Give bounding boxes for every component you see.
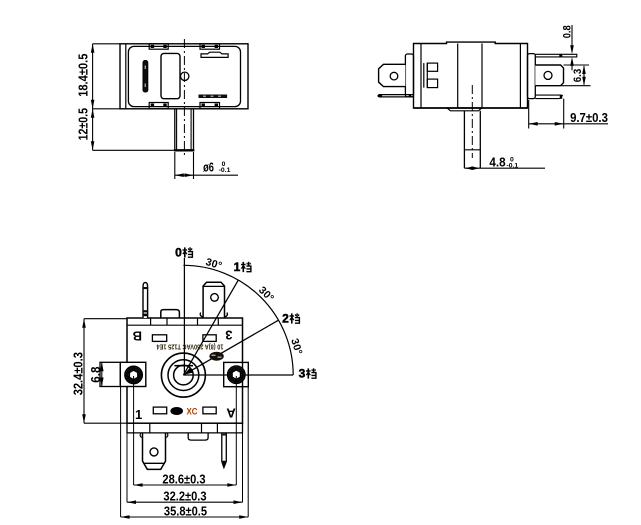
svg-text:2: 2 xyxy=(282,312,289,326)
svg-text:-0.1: -0.1 xyxy=(507,162,519,169)
svg-text:4.8: 4.8 xyxy=(489,154,505,169)
svg-text:XC: XC xyxy=(187,407,198,417)
svg-text:28.6±0.3: 28.6±0.3 xyxy=(162,473,205,487)
svg-text:10 (8)A 250VAC T125 1E4: 10 (8)A 250VAC T125 1E4 xyxy=(156,342,224,351)
svg-text:ø6: ø6 xyxy=(203,159,214,174)
svg-text:A: A xyxy=(226,406,236,421)
svg-text:1: 1 xyxy=(234,260,241,274)
svg-text:32.4±0.3: 32.4±0.3 xyxy=(72,352,86,395)
svg-text:18.4±0.5: 18.4±0.5 xyxy=(76,54,90,97)
svg-text:32.2±0.3: 32.2±0.3 xyxy=(163,490,206,504)
svg-text:6.3: 6.3 xyxy=(572,69,584,83)
svg-text:9.7±0.3: 9.7±0.3 xyxy=(570,111,608,125)
svg-text:6.8: 6.8 xyxy=(89,366,103,382)
svg-text:B: B xyxy=(133,329,142,344)
svg-text:35.8±0.5: 35.8±0.5 xyxy=(164,504,207,518)
svg-text:1: 1 xyxy=(135,407,142,422)
svg-text:12±0.5: 12±0.5 xyxy=(76,108,90,140)
svg-text:0: 0 xyxy=(175,246,182,260)
svg-text:3: 3 xyxy=(299,367,306,381)
svg-text:3: 3 xyxy=(225,328,232,343)
svg-text:-0.1: -0.1 xyxy=(219,167,231,174)
